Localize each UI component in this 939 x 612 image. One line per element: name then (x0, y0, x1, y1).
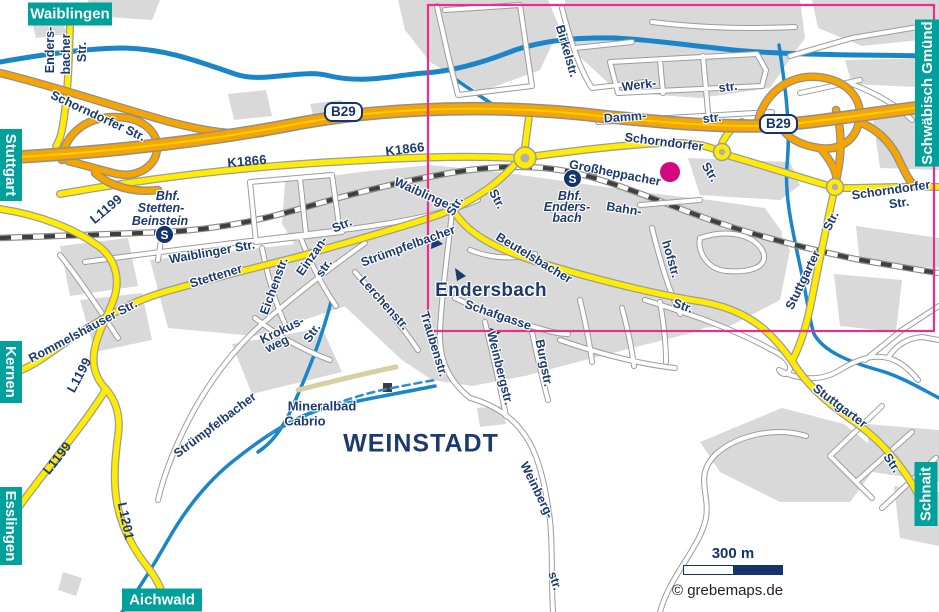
attribution-link[interactable]: © grebemaps.de (672, 582, 783, 599)
street-label-schorndorfer-e-str: Str. (888, 195, 910, 212)
route-badge-b29-east: B29 (759, 114, 798, 134)
edge-label-schnait: Schnait (915, 462, 938, 526)
poi-marker-dot[interactable] (660, 162, 680, 182)
poi-label-mineralbad: Mineralbad (288, 399, 357, 414)
sbahn-icon-stetten-beinstein[interactable]: S (155, 225, 174, 244)
street-label-endersbacher-1: Enders- (43, 27, 57, 74)
street-label-damm: Damm- (603, 109, 646, 126)
scale-label: 300 m (683, 545, 783, 562)
map-canvas[interactable]: Enders- bacher Str. Schorndorfer Str. K1… (0, 0, 939, 612)
edge-label-aichwald: Aichwald (122, 589, 202, 612)
poi-label-cabrio: Cabrio (284, 414, 325, 429)
station-label-stetten-2: Stetten- (138, 201, 185, 215)
street-label-damm-str: str. (702, 110, 722, 126)
edge-label-schwaebisch-gmuend: Schwäbisch Gmünd (915, 20, 939, 167)
street-label-endersbacher-2: bacher (59, 34, 73, 75)
street-label-endersbacher-str: Str. (75, 42, 89, 62)
place-label-weinstadt: WEINSTADT (343, 430, 499, 459)
sbahn-icon-endersbach[interactable]: S (563, 169, 582, 188)
scale-bar-segments (683, 565, 783, 575)
route-badge-b29-west: B29 (324, 102, 363, 122)
edge-label-stuttgart: Stuttgart (0, 129, 22, 201)
street-label-werk-str: str. (718, 79, 738, 95)
station-label-endersbach-3: bach (552, 211, 581, 225)
scale-bar: 300 m (683, 545, 783, 575)
edge-label-waiblingen: Waiblingen (28, 3, 112, 26)
place-label-endersbach: Endersbach (435, 280, 547, 302)
edge-label-kernen: Kernen (0, 341, 22, 403)
edge-label-esslingen: Esslingen (0, 487, 22, 565)
